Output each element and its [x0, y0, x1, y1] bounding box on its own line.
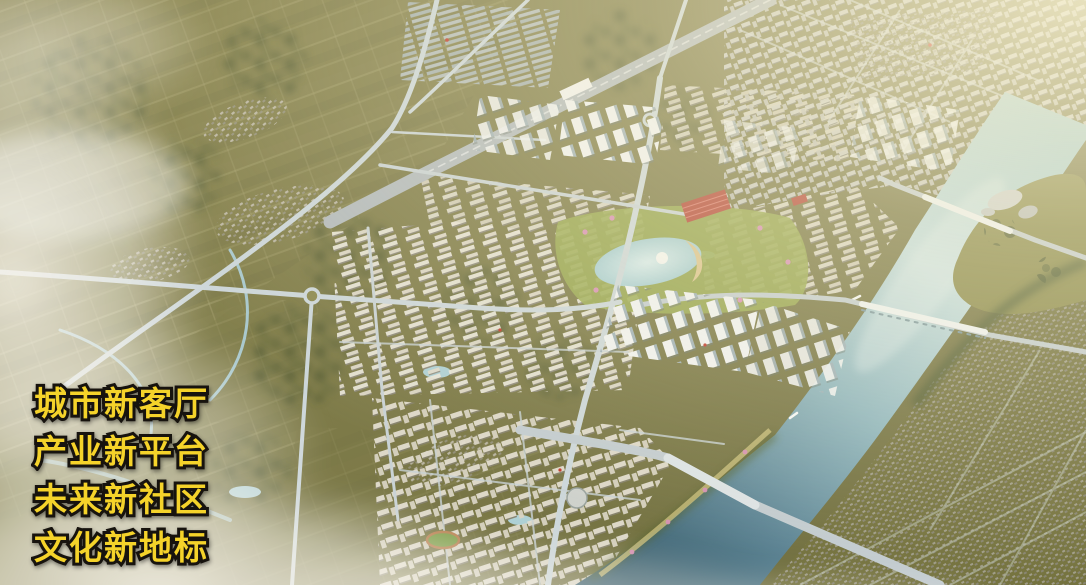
slogan-line-3-text: 未来新社区	[34, 476, 209, 524]
slogan-line-4-text: 文化新地标	[34, 524, 209, 572]
aerial-city-rendering: 城市新客厅 城市新客厅 产业新平台 产业新平台 未来新社区 未来新社区 文化新地…	[0, 0, 1086, 585]
slogan-line-1-text: 城市新客厅	[34, 380, 209, 428]
slogan-line-2-text: 产业新平台	[34, 428, 209, 476]
